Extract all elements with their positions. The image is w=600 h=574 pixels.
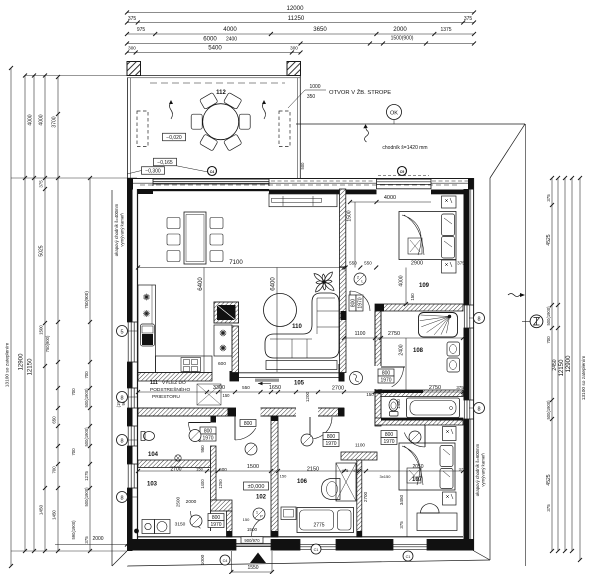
svg-text:13100 so zateplením: 13100 so zateplením bbox=[581, 356, 587, 401]
svg-text:−0,165: −0,165 bbox=[157, 160, 173, 166]
svg-text:1550: 1550 bbox=[247, 565, 258, 571]
svg-text:150: 150 bbox=[410, 293, 415, 301]
svg-text:chodník š=1420 mm: chodník š=1420 mm bbox=[382, 145, 427, 151]
svg-text:1275: 1275 bbox=[84, 471, 89, 481]
svg-text:700: 700 bbox=[84, 371, 89, 379]
svg-text:okapový chodník š=600mm: okapový chodník š=600mm bbox=[475, 443, 480, 496]
svg-text:700: 700 bbox=[71, 448, 76, 456]
svg-text:550: 550 bbox=[349, 261, 357, 266]
svg-text:1450: 1450 bbox=[39, 504, 44, 515]
svg-text:okapový chodník š=400mm: okapový chodník š=400mm bbox=[114, 203, 119, 256]
svg-text:104: 104 bbox=[148, 452, 159, 458]
svg-text:4000: 4000 bbox=[223, 26, 237, 33]
svg-text:4525: 4525 bbox=[546, 474, 552, 485]
svg-text:1375: 1375 bbox=[440, 27, 451, 33]
svg-text:106: 106 bbox=[297, 479, 308, 485]
svg-text:600: 600 bbox=[219, 467, 227, 472]
svg-text:1400: 1400 bbox=[200, 479, 205, 489]
svg-text:1000: 1000 bbox=[200, 554, 206, 565]
svg-text:4000: 4000 bbox=[39, 114, 45, 125]
svg-text:1650: 1650 bbox=[269, 385, 281, 391]
svg-text:500(1900): 500(1900) bbox=[84, 427, 89, 447]
svg-text:−0,300: −0,300 bbox=[145, 169, 161, 175]
svg-text:2775: 2775 bbox=[313, 523, 324, 529]
svg-text:950: 950 bbox=[200, 445, 205, 453]
svg-text:2900: 2900 bbox=[411, 261, 423, 267]
svg-text:800: 800 bbox=[244, 421, 253, 427]
svg-text:11250: 11250 bbox=[288, 15, 305, 22]
svg-text:1100: 1100 bbox=[355, 443, 365, 448]
svg-text:500(1900): 500(1900) bbox=[84, 487, 89, 507]
svg-text:500: 500 bbox=[300, 162, 305, 170]
svg-text:6400: 6400 bbox=[270, 277, 277, 291]
svg-text:3650: 3650 bbox=[313, 26, 327, 33]
svg-text:375: 375 bbox=[84, 536, 89, 544]
svg-text:±0,000: ±0,000 bbox=[248, 484, 265, 490]
svg-text:750(900): 750(900) bbox=[45, 335, 50, 352]
svg-text:2400: 2400 bbox=[399, 344, 405, 355]
svg-text:2500: 2500 bbox=[176, 496, 181, 507]
svg-text:2050: 2050 bbox=[412, 464, 423, 470]
svg-text:375: 375 bbox=[128, 16, 137, 22]
svg-text:900/970: 900/970 bbox=[244, 538, 260, 543]
svg-text:375: 375 bbox=[39, 180, 44, 188]
svg-text:3150: 3150 bbox=[175, 522, 186, 528]
svg-text:6400: 6400 bbox=[197, 277, 204, 291]
svg-text:600: 600 bbox=[218, 361, 226, 367]
svg-text:150: 150 bbox=[196, 467, 203, 472]
svg-text:1500(900): 1500(900) bbox=[391, 36, 414, 42]
svg-text:C4: C4 bbox=[210, 170, 215, 174]
svg-text:107: 107 bbox=[412, 477, 423, 483]
svg-text:300: 300 bbox=[128, 46, 136, 51]
svg-text:4000: 4000 bbox=[28, 114, 34, 125]
svg-text:375: 375 bbox=[457, 261, 465, 266]
svg-text:1970: 1970 bbox=[210, 522, 221, 528]
svg-text:150: 150 bbox=[366, 392, 374, 397]
svg-text:2700: 2700 bbox=[332, 386, 344, 392]
svg-text:2000: 2000 bbox=[186, 499, 197, 505]
svg-text:375: 375 bbox=[459, 467, 466, 472]
svg-text:375: 375 bbox=[399, 521, 404, 529]
svg-text:112: 112 bbox=[216, 90, 226, 96]
svg-text:375: 375 bbox=[546, 194, 551, 202]
svg-text:500(1900): 500(1900) bbox=[546, 400, 551, 420]
svg-text:3300: 3300 bbox=[213, 385, 225, 391]
svg-text:OK: OK bbox=[390, 111, 398, 117]
svg-text:700: 700 bbox=[71, 388, 76, 396]
svg-text:700: 700 bbox=[546, 336, 551, 344]
svg-text:OTVOR V ŽB. STROPE: OTVOR V ŽB. STROPE bbox=[329, 88, 391, 96]
svg-text:2000: 2000 bbox=[393, 26, 407, 33]
svg-text:4000: 4000 bbox=[399, 275, 405, 286]
svg-text:PRIESTORU: PRIESTORU bbox=[152, 394, 180, 400]
svg-text:1500: 1500 bbox=[247, 527, 258, 532]
svg-text:vymývaný kameň: vymývaný kameň bbox=[120, 213, 125, 247]
svg-text:1970: 1970 bbox=[325, 441, 336, 447]
svg-text:3450: 3450 bbox=[399, 494, 404, 505]
svg-text:P: P bbox=[260, 514, 263, 519]
svg-text:−0,020: −0,020 bbox=[166, 135, 182, 141]
svg-text:2000: 2000 bbox=[92, 536, 103, 542]
svg-text:975: 975 bbox=[137, 27, 146, 33]
svg-text:105: 105 bbox=[294, 381, 305, 387]
svg-text:4525: 4525 bbox=[546, 234, 552, 245]
svg-text:1250: 1250 bbox=[218, 479, 223, 489]
svg-text:C4: C4 bbox=[223, 559, 228, 563]
svg-text:108: 108 bbox=[413, 348, 424, 354]
svg-text:13100 so zateplením: 13100 so zateplením bbox=[5, 343, 11, 388]
svg-text:150: 150 bbox=[280, 474, 287, 479]
svg-text:8: 8 bbox=[120, 396, 123, 402]
svg-text:12150: 12150 bbox=[27, 358, 34, 376]
svg-text:VÝLEZ DO: VÝLEZ DO bbox=[162, 379, 186, 386]
svg-text:C9: C9 bbox=[400, 170, 405, 174]
svg-text:1500: 1500 bbox=[247, 464, 259, 470]
svg-text:3700: 3700 bbox=[52, 116, 58, 127]
svg-text:590(1900): 590(1900) bbox=[71, 520, 76, 540]
svg-text:vymývaný kameň: vymývaný kameň bbox=[481, 453, 486, 487]
svg-text:2400: 2400 bbox=[226, 37, 237, 43]
svg-text:350: 350 bbox=[307, 94, 316, 100]
svg-text:750(900): 750(900) bbox=[84, 291, 89, 309]
svg-text:8: 8 bbox=[477, 407, 480, 413]
svg-text:550: 550 bbox=[242, 385, 250, 390]
svg-text:150: 150 bbox=[223, 393, 231, 398]
svg-text:1970: 1970 bbox=[202, 436, 213, 442]
svg-text:12000: 12000 bbox=[287, 5, 305, 12]
svg-text:2750: 2750 bbox=[388, 331, 400, 337]
svg-text:1000: 1000 bbox=[309, 84, 320, 90]
svg-text:102: 102 bbox=[256, 495, 267, 501]
svg-text:2150: 2150 bbox=[307, 466, 319, 472]
svg-text:1970: 1970 bbox=[358, 297, 364, 308]
svg-text:8: 8 bbox=[120, 496, 123, 502]
svg-text:109: 109 bbox=[419, 283, 430, 289]
svg-text:C1: C1 bbox=[406, 555, 411, 559]
svg-text:475: 475 bbox=[353, 468, 360, 473]
svg-text:1200: 1200 bbox=[305, 391, 310, 402]
svg-text:5400: 5400 bbox=[208, 45, 222, 52]
svg-text:700: 700 bbox=[52, 466, 57, 474]
svg-text:12900: 12900 bbox=[565, 355, 572, 373]
svg-text:5025: 5025 bbox=[39, 245, 45, 256]
svg-text:6000: 6000 bbox=[203, 36, 217, 43]
svg-text:2700: 2700 bbox=[363, 491, 368, 502]
svg-text:500(1900): 500(1900) bbox=[84, 388, 89, 408]
svg-text:1450: 1450 bbox=[396, 399, 401, 409]
svg-text:375: 375 bbox=[464, 16, 473, 22]
svg-text:8: 8 bbox=[477, 317, 480, 323]
svg-text:12150: 12150 bbox=[558, 359, 565, 377]
svg-text:550: 550 bbox=[364, 261, 372, 266]
svg-text:500(1900): 500(1900) bbox=[546, 306, 551, 326]
svg-text:4000: 4000 bbox=[384, 195, 396, 201]
svg-text:C1: C1 bbox=[314, 548, 319, 552]
svg-text:8: 8 bbox=[120, 439, 123, 445]
svg-text:1500: 1500 bbox=[39, 325, 44, 335]
svg-text:1970: 1970 bbox=[383, 439, 394, 445]
svg-text:475: 475 bbox=[342, 468, 349, 473]
svg-text:12900: 12900 bbox=[18, 353, 25, 371]
svg-text:375: 375 bbox=[456, 385, 464, 390]
svg-text:2700: 2700 bbox=[170, 467, 181, 473]
svg-text:1100: 1100 bbox=[355, 331, 366, 337]
svg-text:7100: 7100 bbox=[229, 259, 243, 266]
svg-text:1970: 1970 bbox=[380, 378, 391, 384]
svg-text:111: 111 bbox=[150, 380, 158, 386]
svg-text:2750: 2750 bbox=[429, 385, 441, 391]
svg-text:375: 375 bbox=[546, 504, 551, 512]
svg-text:110: 110 bbox=[292, 324, 302, 330]
svg-text:650: 650 bbox=[52, 416, 57, 424]
svg-text:103: 103 bbox=[147, 482, 158, 488]
svg-text:150: 150 bbox=[243, 517, 250, 522]
svg-text:300: 300 bbox=[290, 46, 298, 51]
svg-text:5: 5 bbox=[120, 330, 123, 336]
svg-text:3x150: 3x150 bbox=[380, 474, 392, 479]
svg-text:1500: 1500 bbox=[347, 210, 353, 221]
svg-text:1450: 1450 bbox=[52, 510, 57, 520]
